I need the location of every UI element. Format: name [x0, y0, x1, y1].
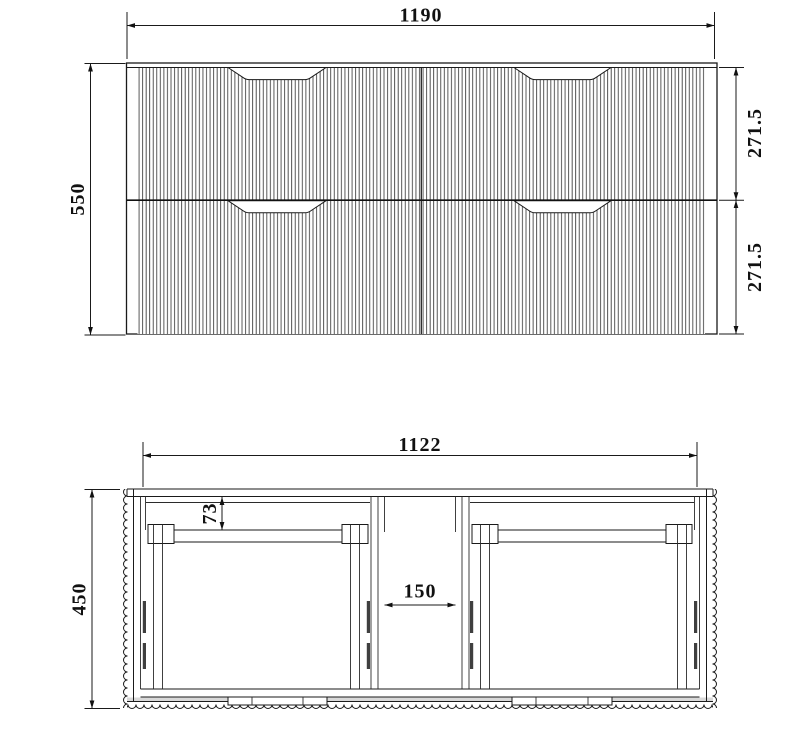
front-elevation-view: 1190 550 271.5 271.5 — [67, 5, 766, 336]
runner-clip — [143, 601, 146, 633]
left-drawer-box — [148, 525, 368, 690]
runner-bracket — [472, 525, 498, 544]
runner-bracket — [148, 525, 174, 544]
plan-section-view: 1122 450 73 150 — [69, 434, 721, 710]
dim-label-back-offset: 73 — [199, 503, 221, 525]
dim-label-plan-width: 1122 — [399, 434, 442, 456]
front-cabinet-body — [127, 63, 718, 334]
runner-clip — [367, 643, 370, 669]
runner-clip — [143, 643, 146, 669]
recess-outline — [228, 697, 327, 705]
drawing-canvas: 1190 550 271.5 271.5 — [0, 0, 800, 754]
front-band-shading — [127, 698, 713, 702]
handle-notch-top-left — [228, 68, 326, 80]
fluted-edge-left — [120, 489, 128, 708]
dim-label-plan-depth: 450 — [69, 583, 91, 616]
runner-clip — [470, 601, 473, 633]
dim-label-center-gap: 150 — [404, 581, 437, 603]
runner-clip — [470, 643, 473, 669]
drawer-back-rail — [472, 530, 692, 542]
handle-notch-bottom-left — [228, 201, 326, 213]
front-handle-recess-right — [512, 697, 612, 705]
fluted-edge-right — [713, 489, 721, 708]
right-drawer-box — [472, 525, 692, 690]
runner-bracket — [342, 525, 368, 544]
dim-label-drawer-top: 271.5 — [744, 108, 766, 158]
recess-outline — [512, 697, 612, 705]
runner-clips — [143, 601, 697, 669]
fluted-edge-front — [127, 702, 713, 711]
front-handle-recess-left — [228, 697, 327, 705]
technical-drawing-page: 1190 550 271.5 271.5 — [0, 0, 800, 754]
runner-bracket — [666, 525, 692, 544]
dim-label-front-width: 1190 — [400, 5, 443, 27]
dim-label-front-height: 550 — [67, 183, 89, 216]
drawer-back-rail — [148, 530, 368, 542]
runner-clip — [694, 601, 697, 633]
runner-clip — [367, 601, 370, 633]
dim-label-drawer-bottom: 271.5 — [744, 242, 766, 292]
runner-clip — [694, 643, 697, 669]
